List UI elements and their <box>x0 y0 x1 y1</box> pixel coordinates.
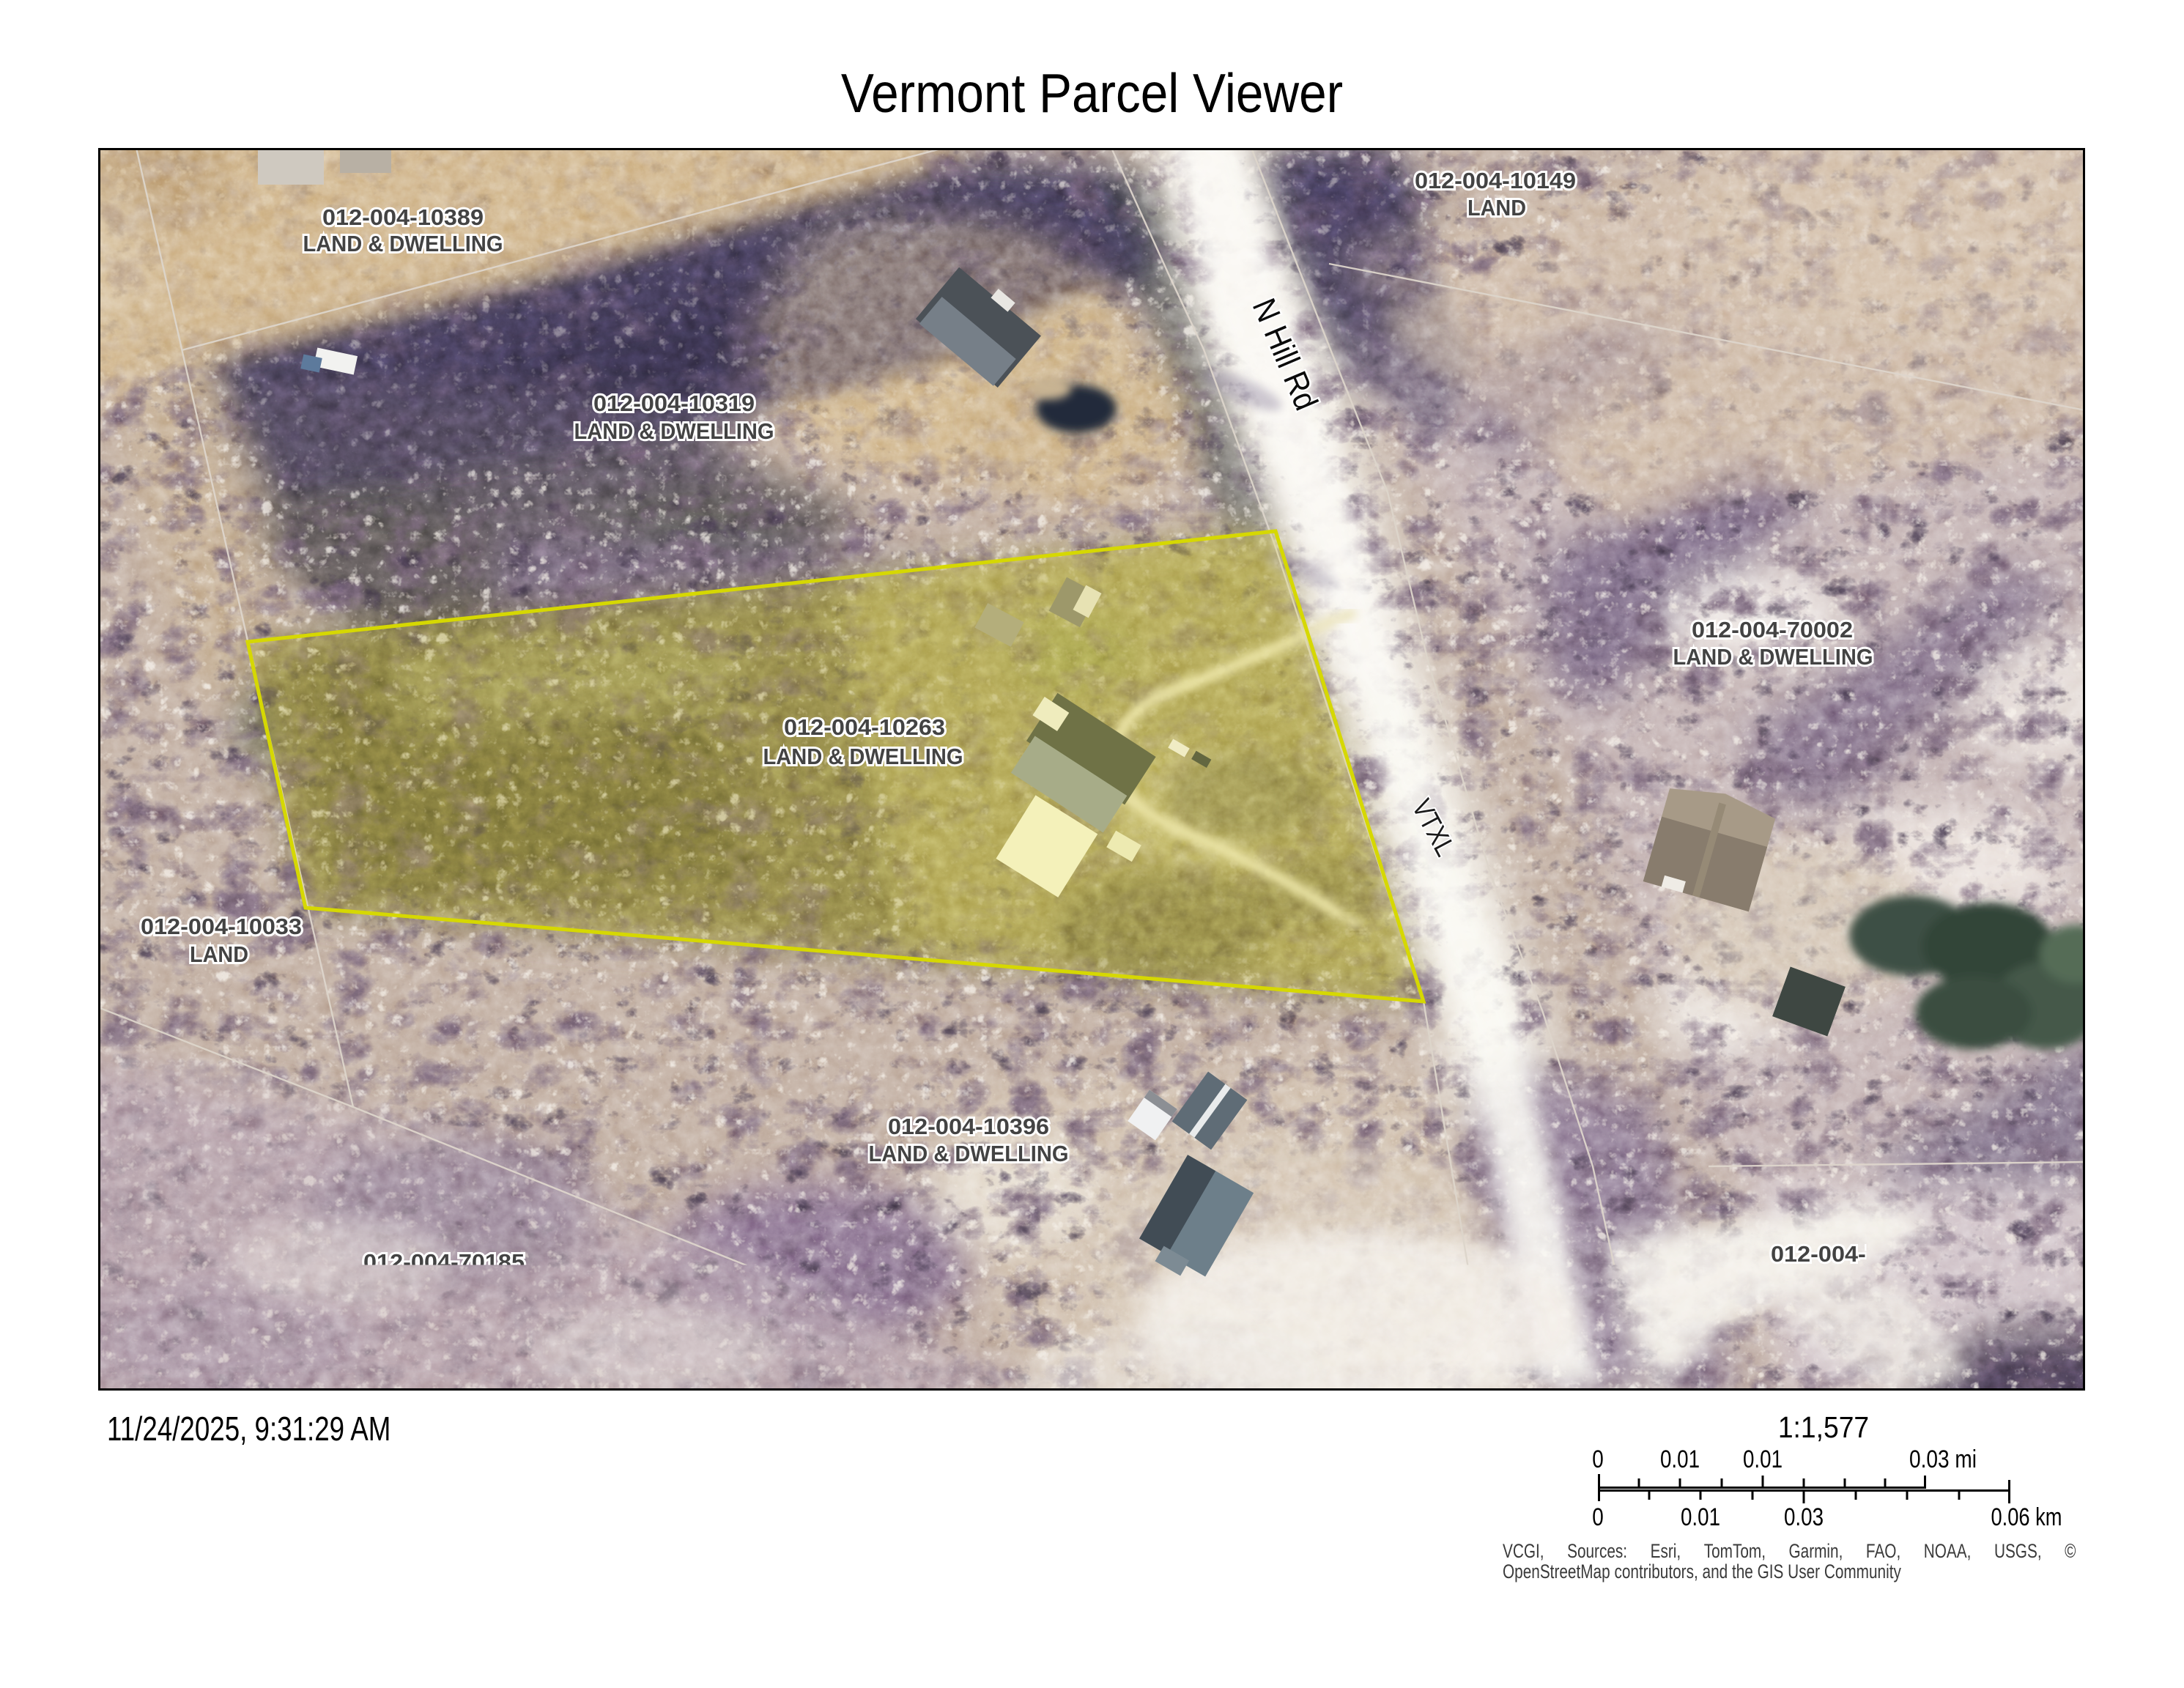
svg-text:0: 0 <box>1592 1445 1604 1473</box>
svg-text:0: 0 <box>1592 1503 1604 1531</box>
svg-text:LAND & DWELLING: LAND & DWELLING <box>1673 644 1873 670</box>
svg-text:0.03 mi: 0.03 mi <box>1909 1445 1977 1473</box>
svg-text:012-004-70002: 012-004-70002 <box>1692 617 1853 643</box>
svg-text:012-004-70185: 012-004-70185 <box>363 1249 525 1275</box>
svg-text:012-004-10263: 012-004-10263 <box>784 714 945 740</box>
svg-text:0.06 km: 0.06 km <box>1991 1503 2062 1531</box>
svg-text:0.01: 0.01 <box>1660 1445 1700 1473</box>
svg-text:LAND & DWELLING: LAND & DWELLING <box>303 231 503 256</box>
svg-text:012-004-10389: 012-004-10389 <box>322 204 484 230</box>
svg-text:0.03: 0.03 <box>1784 1503 1824 1531</box>
svg-text:LAND: LAND <box>190 941 248 967</box>
svg-text:LAND & DWELLING: LAND & DWELLING <box>574 418 774 444</box>
svg-text:LAND & DWELLING: LAND & DWELLING <box>869 1141 1069 1166</box>
svg-text:0.01: 0.01 <box>1743 1445 1783 1473</box>
svg-text:012-004-10319: 012-004-10319 <box>593 390 755 416</box>
svg-text:LAND & DWELLING: LAND & DWELLING <box>763 744 963 769</box>
svg-text:LAND & DWELLING: LAND & DWELLING <box>344 1277 544 1303</box>
svg-text:012-004-10149: 012-004-10149 <box>1415 168 1576 193</box>
svg-text:LAND: LAND <box>1822 1270 1881 1295</box>
svg-text:012-004-70005: 012-004-70005 <box>1771 1241 1932 1267</box>
svg-text:012-004-10033: 012-004-10033 <box>141 914 302 939</box>
svg-text:012-004-10396: 012-004-10396 <box>888 1114 1049 1139</box>
svg-text:LAND: LAND <box>1467 195 1526 221</box>
svg-text:0.01: 0.01 <box>1681 1503 1720 1531</box>
